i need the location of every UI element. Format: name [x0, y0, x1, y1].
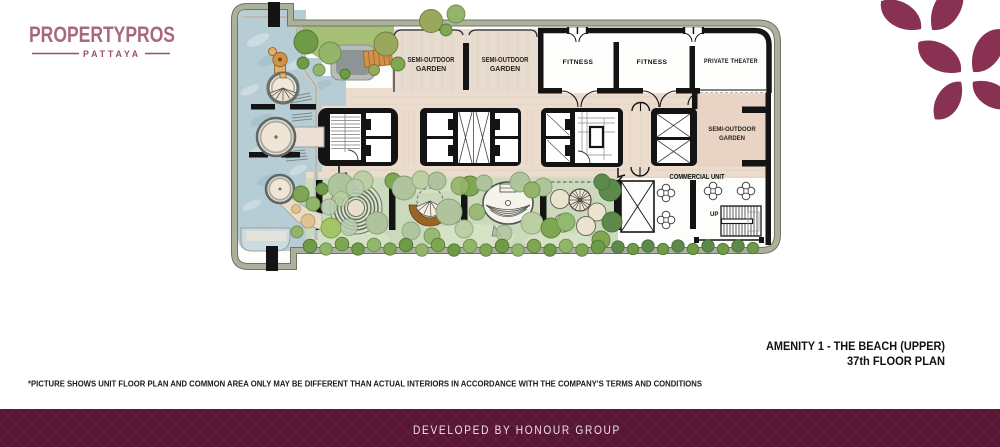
svg-text:COMMERCIAL UNIT: COMMERCIAL UNIT: [670, 174, 726, 181]
svg-text:*PICTURE SHOWS UNIT FLOOR PLAN: *PICTURE SHOWS UNIT FLOOR PLAN AND COMMO…: [28, 380, 703, 389]
svg-text:SEMI-OUTDOOR: SEMI-OUTDOOR: [708, 127, 756, 133]
svg-text:FITNESS: FITNESS: [637, 59, 668, 66]
svg-text:DEVELOPED BY HONOUR GROUP: DEVELOPED BY HONOUR GROUP: [413, 423, 621, 437]
svg-text:SEMI-OUTDOOR: SEMI-OUTDOOR: [482, 57, 529, 64]
svg-text:PRIVATE THEATER: PRIVATE THEATER: [704, 58, 758, 65]
svg-text:37th FLOOR PLAN: 37th FLOOR PLAN: [847, 356, 945, 368]
svg-text:GARDEN: GARDEN: [416, 66, 446, 73]
svg-text:FITNESS: FITNESS: [563, 59, 594, 66]
svg-text:PATTAYA: PATTAYA: [83, 49, 141, 60]
svg-text:GARDEN: GARDEN: [490, 66, 520, 73]
svg-text:AMENITY 1 - THE BEACH (UPPER): AMENITY 1 - THE BEACH (UPPER): [766, 341, 945, 353]
svg-text:GARDEN: GARDEN: [719, 136, 745, 142]
svg-text:UP: UP: [710, 212, 718, 218]
svg-text:SEMI-OUTDOOR: SEMI-OUTDOOR: [408, 57, 455, 64]
svg-text:PROPERTYPROS: PROPERTYPROS: [29, 22, 175, 47]
